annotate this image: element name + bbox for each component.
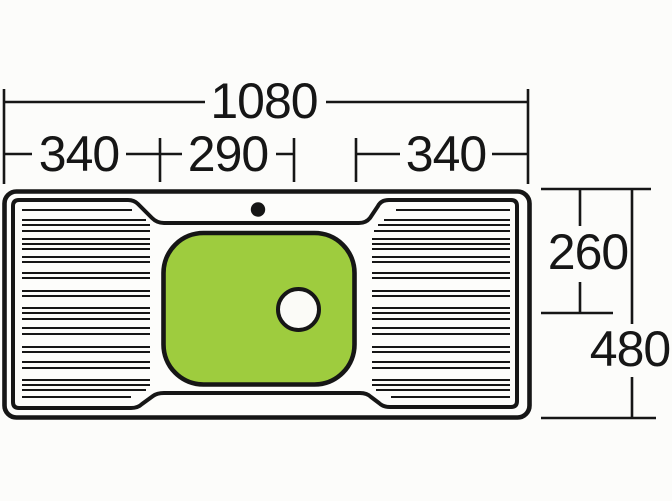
sink-dimension-diagram: 1080 340 290 340 260 480 [0,0,672,501]
tap-hole [251,202,265,216]
dim-label-right-drainer-width: 340 [406,126,486,182]
sink-bowl [164,233,355,385]
dim-label-overall-depth: 480 [590,321,670,377]
drain-hole [278,289,319,330]
sink-body [5,192,530,418]
dim-label-bowl-depth: 260 [548,224,628,280]
dim-label-overall-width: 1080 [210,73,317,129]
dim-label-left-drainer-width: 340 [39,126,119,182]
drawing-canvas: 1080 340 290 340 260 480 [0,0,672,501]
dim-label-bowl-width: 290 [188,126,268,182]
